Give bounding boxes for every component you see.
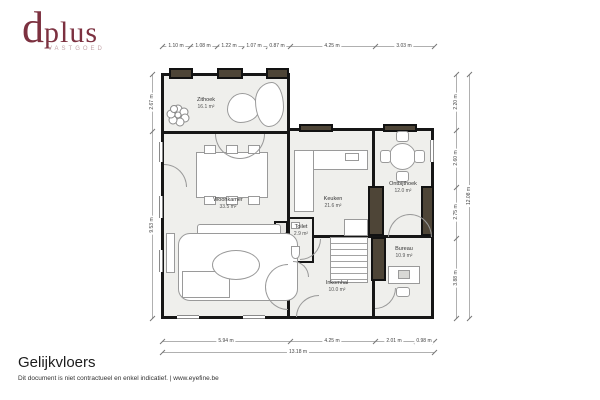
chair — [204, 145, 216, 154]
staircase — [330, 237, 368, 283]
chair — [380, 150, 391, 163]
dim-label: 1.22 m — [219, 43, 238, 49]
tick — [454, 316, 460, 322]
kitchen-sink — [345, 153, 359, 161]
dining-table — [196, 152, 268, 198]
label-ontbijthoek-name: Ontbijthoek — [389, 181, 417, 187]
label-ontbijthoek: Ontbijthoek 12.0 m² — [389, 181, 417, 195]
label-zithoek: Zithoek 16.1 m² — [197, 97, 215, 111]
label-bureau-name: Bureau — [395, 246, 413, 252]
floor-title: Gelijkvloers — [18, 354, 219, 371]
window-block — [299, 124, 333, 132]
dim-label: 2.01 m — [384, 338, 403, 344]
floorplan-page: dplus VASTGOED Zithoek 16.1 m² Woonkamer… — [0, 0, 600, 400]
tick — [467, 316, 473, 322]
label-toilet-area: 2.9 m² — [294, 231, 308, 238]
dim-label: 5.94 m — [216, 338, 235, 344]
label-woonkamer-area: 33.5 m² — [213, 204, 243, 211]
label-ontbijthoek-area: 12.0 m² — [389, 188, 417, 195]
label-bureau-area: 10.9 m² — [395, 253, 413, 260]
dim-label-total: 12.08 m — [466, 185, 472, 207]
tick — [432, 44, 438, 50]
window — [159, 250, 163, 272]
dim-label: 4.25 m — [322, 338, 341, 344]
label-keuken: Keuken 21.6 m² — [324, 196, 343, 210]
dim-label: 1.10 m — [166, 43, 185, 49]
wall-mass — [371, 237, 386, 281]
dim-label: 9.53 m — [149, 215, 155, 234]
window — [159, 196, 163, 218]
dim-label: 2.20 m — [453, 92, 459, 111]
tick — [432, 350, 438, 356]
window-block — [169, 68, 193, 79]
dim-label: 3.03 m — [394, 43, 413, 49]
window — [243, 315, 265, 319]
lounge-blob — [255, 82, 284, 127]
breakfast-table — [389, 143, 416, 170]
tv-cabinet — [166, 233, 175, 273]
dim-label: 0.98 m — [414, 338, 433, 344]
label-keuken-name: Keuken — [324, 196, 343, 202]
dim-label: 1.07 m — [244, 43, 263, 49]
label-bureau: Bureau 10.9 m² — [395, 246, 413, 260]
plant-icon — [166, 103, 190, 127]
disclaimer-text: Dit document is niet contractueel en enk… — [18, 375, 219, 382]
footer: Gelijkvloers Dit document is niet contra… — [18, 354, 219, 382]
brand-logo-initial: d — [22, 3, 44, 52]
wall-mass — [368, 186, 384, 236]
brand-logo-text: plus — [44, 16, 98, 49]
label-inkomhal-area: 10.0 m² — [326, 287, 348, 294]
window — [159, 142, 163, 162]
chair — [248, 196, 260, 205]
window — [430, 140, 434, 162]
label-inkomhal-name: Inkomhal — [326, 280, 348, 286]
dim-label: 4.25 m — [322, 43, 341, 49]
label-toilet-name: Toilet — [295, 224, 308, 230]
label-woonkamer-name: Woonkamer — [213, 197, 243, 203]
dim-label: 2.67 m — [149, 92, 155, 111]
brand-logo-subtext: VASTGOED — [48, 46, 105, 52]
dim-label: 3.88 m — [453, 268, 459, 287]
chair — [414, 150, 425, 163]
dim-label-total: 13.18 m — [287, 349, 309, 355]
label-zithoek-area: 16.1 m² — [197, 104, 215, 111]
dim-label: 0.87 m — [267, 43, 286, 49]
coffee-table — [212, 250, 260, 280]
toilet-bowl — [291, 246, 300, 259]
window-block — [266, 68, 289, 79]
desk-chair — [396, 287, 410, 297]
label-toilet: Toilet 2.9 m² — [294, 224, 308, 238]
dim-label: 2.75 m — [453, 202, 459, 221]
label-woonkamer: Woonkamer 33.5 m² — [213, 197, 243, 211]
laptop — [398, 270, 410, 279]
dim-label: 1.08 m — [193, 43, 212, 49]
label-zithoek-name: Zithoek — [197, 97, 215, 103]
window — [177, 315, 199, 319]
kitchen-counter — [294, 150, 314, 212]
dim-label: 2.60 m — [453, 148, 459, 167]
chair — [396, 131, 409, 142]
window-block — [217, 68, 243, 79]
stair-landing — [344, 219, 368, 236]
label-keuken-area: 21.6 m² — [324, 203, 343, 210]
brand-logo: dplus VASTGOED — [22, 6, 105, 52]
tick — [150, 316, 156, 322]
label-inkomhal: Inkomhal 10.0 m² — [326, 280, 348, 294]
